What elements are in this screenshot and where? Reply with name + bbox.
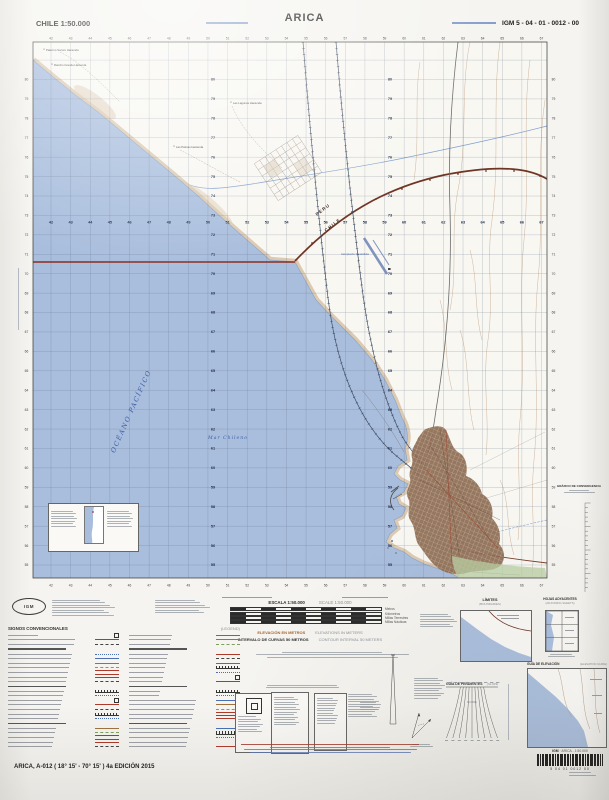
svg-text:57: 57 [343, 220, 347, 224]
svg-text:56: 56 [552, 544, 556, 548]
svg-text:77: 77 [388, 136, 392, 140]
svg-text:65: 65 [211, 369, 215, 373]
svg-text:50: 50 [206, 584, 210, 588]
limites-en: (BOUNDARIES) [462, 602, 518, 606]
svg-text:47: 47 [147, 37, 151, 41]
svg-text:64: 64 [481, 584, 485, 588]
svg-text:59: 59 [383, 584, 387, 588]
svg-text:71: 71 [552, 252, 556, 256]
svg-text:58: 58 [211, 505, 215, 509]
svg-text:69: 69 [388, 291, 392, 295]
adjoining-en: (ADJOINING SHEETS) [534, 601, 586, 605]
svg-text:66: 66 [520, 220, 524, 224]
declination-notes-left [360, 700, 382, 712]
elev-en: ELEVATIONS IN METERS [315, 630, 362, 635]
svg-text:55: 55 [25, 563, 29, 567]
svg-text:65: 65 [500, 37, 504, 41]
projection-notes [155, 598, 213, 615]
svg-text:68: 68 [388, 311, 392, 315]
svg-text:80: 80 [25, 78, 29, 82]
svg-text:48: 48 [167, 584, 171, 588]
scale-bar-km [230, 612, 382, 616]
svg-text:60: 60 [402, 584, 406, 588]
svg-text:58: 58 [388, 505, 392, 509]
unit-km: Kilómetros [385, 612, 400, 616]
svg-text:73: 73 [388, 214, 392, 218]
svg-text:59: 59 [382, 220, 386, 224]
svg-text:63: 63 [461, 584, 465, 588]
svg-text:59: 59 [388, 486, 392, 490]
limites-notes [420, 612, 458, 629]
svg-text:63: 63 [552, 408, 556, 412]
svg-text:54: 54 [285, 584, 289, 588]
svg-text:72: 72 [25, 233, 29, 237]
svg-text:56: 56 [388, 544, 392, 548]
svg-text:43: 43 [69, 37, 73, 41]
svg-text:79: 79 [25, 97, 29, 101]
svg-text:80: 80 [388, 78, 392, 82]
svg-text:77: 77 [25, 136, 29, 140]
svg-text:77: 77 [211, 136, 215, 140]
svg-text:63: 63 [211, 408, 215, 412]
svg-text:46: 46 [127, 220, 131, 224]
svg-text:74: 74 [552, 194, 556, 198]
svg-text:73: 73 [211, 214, 215, 218]
svg-text:66: 66 [520, 37, 524, 41]
svg-text:78: 78 [552, 117, 556, 121]
svg-text:58: 58 [363, 220, 367, 224]
svg-text:55: 55 [304, 584, 308, 588]
svg-text:59: 59 [211, 486, 215, 490]
svg-text:56: 56 [324, 37, 328, 41]
svg-text:61: 61 [388, 447, 392, 451]
svg-text:58: 58 [363, 37, 367, 41]
svg-text:69: 69 [25, 291, 29, 295]
svg-text:52: 52 [245, 584, 249, 588]
conversion-box-2 [314, 693, 347, 751]
svg-text:80: 80 [211, 78, 215, 82]
legend-column-1 [8, 633, 119, 749]
svg-text:61: 61 [422, 220, 426, 224]
barcode-block: IGM · ARICA - 1:50.000 5 04 01 0012 00 [537, 749, 603, 777]
scale-bar-metros [230, 607, 382, 611]
svg-text:67: 67 [388, 330, 392, 334]
svg-text:62: 62 [211, 427, 215, 431]
svg-text:56: 56 [25, 544, 29, 548]
svg-text:55: 55 [552, 563, 556, 567]
svg-text:78: 78 [25, 117, 29, 121]
svg-text:55: 55 [211, 563, 215, 567]
svg-text:60: 60 [388, 466, 392, 470]
svg-text:72: 72 [211, 233, 215, 237]
elevguide-es: GUÍA DE ELEVACIÓN [527, 662, 559, 666]
legend-column-2 [129, 633, 240, 749]
svg-text:47: 47 [147, 584, 151, 588]
svg-text:49: 49 [187, 584, 191, 588]
svg-text:68: 68 [25, 311, 29, 315]
convergence-title: GRÁFICO DE CONVERGENCIA [552, 484, 606, 488]
svg-text:57: 57 [388, 524, 392, 528]
scale-note-left [222, 597, 272, 598]
svg-text:Palermo Socoro Hacienda: Palermo Socoro Hacienda [46, 48, 79, 52]
svg-text:70: 70 [211, 272, 215, 276]
svg-text:52: 52 [245, 220, 249, 224]
svg-text:67: 67 [211, 330, 215, 334]
svg-text:72: 72 [552, 233, 556, 237]
svg-text:45: 45 [108, 37, 112, 41]
svg-text:75: 75 [552, 175, 556, 179]
svg-text:65: 65 [500, 584, 504, 588]
svg-text:57: 57 [25, 524, 29, 528]
elevation-block: ELEVACIÓN EN METROS ELEVATIONS IN METERS… [210, 630, 410, 642]
svg-text:67: 67 [552, 330, 556, 334]
svg-text:55: 55 [304, 37, 308, 41]
adjoining-heading: HOJAS ADYACENTES (ADJOINING SHEETS) [534, 597, 586, 605]
map-sheet: CHILE 1:50.000 ARICA IGM 5 - 04 - 01 - 0… [0, 0, 609, 800]
svg-text:67: 67 [540, 584, 544, 588]
barcode-digits: 5 04 01 0012 00 [537, 767, 603, 771]
svg-text:46: 46 [128, 584, 132, 588]
scale-note-right [342, 597, 388, 598]
legend-title-es: SIGNOS CONVENCIONALES [8, 626, 68, 631]
adjoining-grid [545, 610, 579, 652]
svg-text:44: 44 [88, 584, 92, 588]
svg-text:72: 72 [388, 233, 392, 237]
svg-text:59: 59 [383, 37, 387, 41]
svg-text:74: 74 [25, 194, 29, 198]
svg-text:62: 62 [552, 427, 556, 431]
svg-text:49: 49 [187, 37, 191, 41]
svg-text:63: 63 [461, 37, 465, 41]
svg-text:71: 71 [211, 252, 215, 256]
svg-text:61: 61 [422, 584, 426, 588]
scale-bar-miles [230, 616, 382, 620]
svg-text:Las Palmas Hacienda: Las Palmas Hacienda [176, 145, 204, 149]
svg-text:48: 48 [167, 220, 171, 224]
convergence-block: GRÁFICO DE CONVERGENCIA [552, 484, 606, 495]
svg-text:63: 63 [388, 408, 392, 412]
svg-text:58: 58 [25, 505, 29, 509]
svg-text:42: 42 [49, 37, 53, 41]
svg-text:66: 66 [552, 350, 556, 354]
svg-text:48: 48 [167, 37, 171, 41]
adjoining-caption [543, 652, 579, 659]
svg-text:75: 75 [388, 175, 392, 179]
scale-label: SCALE 1:50.000 [319, 600, 352, 605]
svg-text:61: 61 [422, 37, 426, 41]
legend-panel: SIGNOS CONVENCIONALES (LEGEND) [8, 626, 240, 749]
svg-text:70: 70 [388, 272, 392, 276]
svg-text:57: 57 [552, 524, 556, 528]
slope-notes [414, 676, 448, 700]
svg-text:60: 60 [402, 37, 406, 41]
declination-diagram [382, 652, 404, 730]
svg-text:76: 76 [211, 155, 215, 159]
svg-text:52: 52 [245, 37, 249, 41]
svg-text:61: 61 [25, 447, 29, 451]
svg-text:56: 56 [324, 220, 328, 224]
svg-text:64: 64 [25, 388, 29, 392]
unit-metros: Metros [385, 607, 395, 611]
svg-text:56: 56 [211, 544, 215, 548]
svg-text:42: 42 [49, 220, 53, 224]
svg-text:73: 73 [25, 214, 29, 218]
sea-label: Mar Chileno [207, 435, 248, 441]
unit-nautical: Millas Náuticas [385, 620, 406, 624]
svg-text:65: 65 [552, 369, 556, 373]
svg-text:76: 76 [25, 155, 29, 159]
svg-text:61: 61 [211, 447, 215, 451]
print-notes [235, 744, 425, 754]
svg-text:65: 65 [388, 369, 392, 373]
escala-label: ESCALA 1:50.000 [268, 600, 304, 605]
svg-text:51: 51 [226, 37, 230, 41]
svg-text:53: 53 [265, 584, 269, 588]
magnetic-north-diagram [406, 708, 436, 742]
footer-sheet-title: ARICA, A-012 ( 18° 15' - 70° 15' ) 4a ED… [14, 764, 155, 770]
limites-diagram [460, 610, 532, 662]
svg-text:78: 78 [388, 117, 392, 121]
svg-text:77: 77 [552, 136, 556, 140]
svg-text:76: 76 [388, 155, 392, 159]
svg-text:60: 60 [552, 466, 556, 470]
chile-minimap [85, 507, 103, 543]
slope-fan-diagram [442, 680, 502, 748]
elevguide-heading: GUÍA DE ELEVACIÓN (ELEVATION GUIDE) [527, 662, 607, 666]
svg-text:71: 71 [25, 252, 29, 256]
svg-text:67: 67 [539, 220, 543, 224]
svg-text:80: 80 [552, 78, 556, 82]
svg-text:79: 79 [552, 97, 556, 101]
svg-text:62: 62 [442, 37, 446, 41]
svg-text:58: 58 [552, 505, 556, 509]
svg-text:57: 57 [343, 37, 347, 41]
svg-text:45: 45 [108, 584, 112, 588]
svg-text:66: 66 [25, 350, 29, 354]
igm-logo: IGM [12, 598, 46, 615]
svg-text:Las Lagunas Hacienda: Las Lagunas Hacienda [233, 101, 262, 105]
svg-text:54: 54 [285, 37, 289, 41]
svg-text:58: 58 [363, 584, 367, 588]
location-inset [48, 503, 139, 552]
barcode [537, 754, 603, 766]
svg-text:67: 67 [540, 37, 544, 41]
svg-text:53: 53 [265, 37, 269, 41]
svg-text:43: 43 [69, 584, 73, 588]
svg-text:51: 51 [225, 220, 229, 224]
svg-text:45: 45 [108, 220, 112, 224]
svg-text:50: 50 [206, 37, 210, 41]
svg-text:66: 66 [388, 350, 392, 354]
svg-text:60: 60 [25, 466, 29, 470]
svg-text:66: 66 [520, 584, 524, 588]
svg-text:79: 79 [388, 97, 392, 101]
svg-text:65: 65 [25, 369, 29, 373]
svg-text:64: 64 [552, 388, 556, 392]
credits-text [52, 598, 118, 617]
svg-text:55: 55 [388, 563, 392, 567]
svg-text:71: 71 [388, 252, 392, 256]
svg-text:65: 65 [500, 220, 504, 224]
svg-text:46: 46 [128, 37, 132, 41]
svg-text:42: 42 [49, 584, 53, 588]
conversion-headings [252, 683, 352, 690]
svg-text:66: 66 [211, 350, 215, 354]
svg-text:47: 47 [147, 220, 151, 224]
svg-text:56: 56 [324, 584, 328, 588]
svg-text:Rancho Grande Hacienda: Rancho Grande Hacienda [54, 63, 87, 67]
svg-text:73: 73 [552, 214, 556, 218]
elev-es: ELEVACIÓN EN METROS [257, 630, 305, 635]
svg-text:57: 57 [211, 524, 215, 528]
elevguide-en: (ELEVATION GUIDE) [580, 662, 607, 666]
svg-text:60: 60 [402, 220, 406, 224]
interval-es: INTERVALO DE CURVAS 50 METROS [238, 637, 309, 642]
svg-text:61: 61 [552, 447, 556, 451]
scale-bar-nautical [230, 620, 382, 624]
svg-text:76: 76 [552, 155, 556, 159]
svg-text:67: 67 [25, 330, 29, 334]
interval-en: CONTOUR INTERVAL 50 METERS [319, 637, 383, 642]
svg-text:69: 69 [552, 291, 556, 295]
limites-heading: LÍMITES (BOUNDARIES) [462, 598, 518, 606]
svg-text:62: 62 [442, 584, 446, 588]
unit-miles: Millas Terrestres [385, 616, 408, 620]
svg-text:62: 62 [388, 427, 392, 431]
svg-text:68: 68 [211, 311, 215, 315]
svg-text:70: 70 [552, 272, 556, 276]
svg-text:68: 68 [552, 311, 556, 315]
svg-text:75: 75 [211, 175, 215, 179]
elevation-guide-map [527, 668, 607, 748]
scale-block: ESCALA 1:50.000 SCALE 1:50.000 Metros Ki… [230, 600, 390, 625]
svg-text:63: 63 [461, 220, 465, 224]
svg-text:75: 75 [25, 175, 29, 179]
svg-text:49: 49 [186, 220, 190, 224]
svg-text:79: 79 [211, 97, 215, 101]
airport-label: Aeropuerto Chacalluta [341, 252, 369, 256]
svg-text:55: 55 [304, 220, 308, 224]
svg-text:69: 69 [211, 291, 215, 295]
svg-text:59: 59 [25, 486, 29, 490]
svg-text:62: 62 [441, 220, 445, 224]
svg-text:44: 44 [88, 37, 92, 41]
svg-text:43: 43 [69, 220, 73, 224]
svg-text:50: 50 [206, 220, 210, 224]
svg-text:63: 63 [25, 408, 29, 412]
legend-title-en: (LEGEND) [221, 626, 240, 631]
svg-text:60: 60 [211, 466, 215, 470]
svg-text:51: 51 [226, 584, 230, 588]
barcode-name: ARICA - 1:50.000 [561, 749, 587, 753]
svg-text:64: 64 [481, 37, 485, 41]
svg-text:78: 78 [211, 117, 215, 121]
margin-note-slope [508, 684, 509, 740]
barcode-brand: IGM [552, 749, 558, 753]
svg-text:57: 57 [343, 584, 347, 588]
svg-text:53: 53 [265, 220, 269, 224]
svg-text:70: 70 [25, 272, 29, 276]
svg-text:62: 62 [25, 427, 29, 431]
convergence-ruler [585, 503, 591, 592]
margin-note-left [18, 268, 19, 330]
